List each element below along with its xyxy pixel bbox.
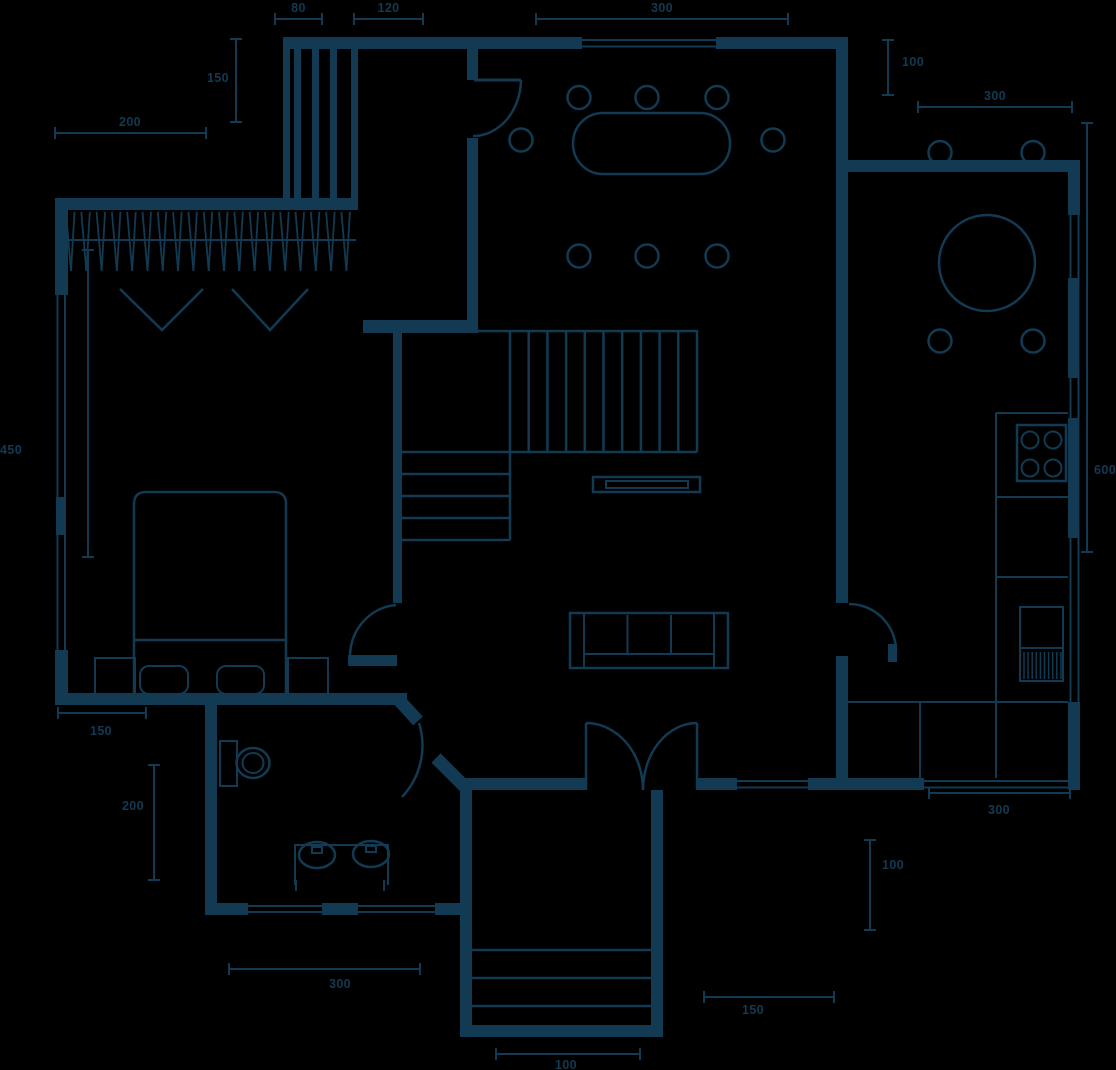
dim-150-bed: 150: [58, 707, 146, 738]
dim-150-top-left: 150: [207, 39, 242, 122]
burner-icon: [1045, 432, 1062, 449]
dim-label: 100: [555, 1058, 577, 1070]
generated-line: [209, 212, 213, 271]
generated-line: [326, 212, 331, 271]
generated-line: [173, 212, 178, 271]
generated-line: [301, 212, 305, 271]
dim-200-bath: 200: [122, 765, 160, 880]
bath-door-arc: [402, 723, 422, 797]
dim-100-steps: 100: [496, 1048, 640, 1070]
bath-door-panel: [436, 758, 466, 788]
generated-line: [234, 212, 239, 271]
generated-line: [255, 212, 259, 271]
hall-door-arc: [473, 80, 521, 136]
generated-line: [102, 212, 106, 271]
dim-label: 80: [291, 1, 306, 15]
floor-plan-canvas: 80 120 300 150 200 100 300 450 600 150 2…: [0, 0, 1116, 1070]
generated-line: [250, 212, 255, 271]
dim-100-kitchen: 100: [864, 840, 904, 930]
wall-porch-right: [651, 790, 663, 1037]
sink-hatch: [1024, 652, 1061, 679]
wall-hall-right-bottom: [467, 138, 478, 333]
generated-line: [127, 212, 132, 271]
generated-line: [280, 212, 285, 271]
generated-line: [219, 212, 224, 271]
faucet-icon: [366, 846, 376, 852]
wall-porch-bottom: [460, 1025, 663, 1037]
generated-line: [81, 212, 86, 271]
bed-icon: [134, 492, 286, 698]
dim-label: 120: [377, 1, 399, 15]
nightstand-icon: [288, 658, 328, 698]
generated-line: [311, 212, 316, 271]
wall-kitchen-bottom: [836, 778, 924, 790]
generated-line: [265, 212, 270, 271]
generated-line: [316, 212, 320, 271]
dim-300-top: 300: [536, 1, 788, 25]
dim-label: 100: [882, 858, 904, 872]
floor-plan-drawing: 80 120 300 150 200 100 300 450 600 150 2…: [0, 0, 1116, 1070]
generated-line: [270, 212, 274, 271]
wall-hall-bottom: [363, 320, 478, 333]
entry-door-arc-right: [643, 723, 697, 790]
generated-line: [204, 212, 209, 271]
burner-icon: [1045, 460, 1062, 477]
sofa-icon: [570, 613, 728, 668]
wall-hall-right-top: [467, 37, 478, 80]
dining-table-icon: [573, 113, 730, 174]
dim-label: 300: [651, 1, 673, 15]
tv-console-icon: [593, 477, 700, 492]
generated-line: [188, 212, 193, 271]
walls: [55, 37, 1080, 1037]
bedroom-door-panel: [348, 655, 397, 666]
chamfer-wall: [398, 699, 418, 721]
dim-80: 80: [275, 1, 322, 25]
generated-line: [346, 212, 350, 271]
wall-kitchen-east-bottom: [1068, 702, 1080, 790]
chair-icon: [636, 86, 659, 109]
tv-icon: [606, 481, 688, 488]
dim-label: 200: [122, 799, 144, 813]
wall-kitchen-east-top: [1068, 160, 1080, 215]
closet-hangers: [66, 212, 350, 271]
chair-icon: [568, 245, 591, 268]
burner-icon: [1022, 460, 1039, 477]
dim-150-porch: 150: [704, 991, 834, 1017]
dim-label: 300: [988, 803, 1010, 817]
faucet-icon: [312, 847, 322, 853]
stairs-upper-treads: [510, 330, 697, 452]
kitchen-counter: [848, 413, 1068, 778]
round-table-icon: [939, 215, 1035, 311]
wardrobe-right-wall: [351, 37, 358, 204]
generated-line: [132, 212, 136, 271]
dim-label: 150: [742, 1003, 764, 1017]
porch-steps: [472, 950, 651, 1006]
dim-300-kitchen-top: 300: [918, 89, 1072, 113]
wall-living-bottom-c: [808, 778, 848, 790]
wardrobe-divider: [294, 49, 301, 202]
pillow-icon: [217, 666, 264, 694]
generated-line: [71, 212, 75, 271]
staircase: [397, 330, 697, 540]
dim-label: 150: [90, 724, 112, 738]
wardrobe-divider: [312, 49, 319, 202]
dim-label: 100: [902, 55, 924, 69]
wall-east-upper: [836, 37, 848, 603]
chair-icon: [762, 129, 785, 152]
wall-top-right: [716, 37, 848, 49]
wall-bath-left: [205, 705, 217, 915]
generated-line: [148, 212, 152, 271]
wardrobe-divider: [330, 49, 337, 202]
toilet-icon: [220, 741, 270, 786]
dim-600-right: 600: [1081, 123, 1116, 552]
burner-icon: [1022, 432, 1039, 449]
generated-line: [143, 212, 148, 271]
chair-icon: [1022, 330, 1045, 353]
garment-icon: [232, 289, 308, 330]
generated-line: [112, 212, 117, 271]
generated-line: [224, 212, 228, 271]
dim-300-kitchen-bottom: 300: [929, 787, 1070, 817]
generated-line: [296, 212, 301, 271]
wall-bath-bottom-b: [322, 903, 358, 915]
nightstand-icon: [95, 658, 135, 698]
generated-line: [163, 212, 167, 271]
chamfer-walls: [398, 699, 466, 788]
chair-icon: [929, 330, 952, 353]
generated-line: [97, 212, 102, 271]
kitchen-door-arc: [849, 604, 896, 651]
wall-living-bottom-a: [462, 778, 586, 790]
dim-120: 120: [354, 1, 423, 25]
generated-line: [239, 212, 243, 271]
dim-label: 450: [0, 443, 22, 457]
wall-bath-bottom-a: [205, 903, 248, 915]
generated-line: [285, 212, 289, 271]
vanity-icon: [295, 841, 389, 885]
dim-label: 300: [984, 89, 1006, 103]
dim-300-bath: 300: [229, 963, 420, 991]
dim-label: 300: [329, 977, 351, 991]
wall-top-left: [283, 37, 582, 49]
entry-door-arc-left: [586, 723, 643, 790]
generated-line: [178, 212, 182, 271]
wall-stairs-left: [393, 333, 402, 603]
dim-label: 150: [207, 71, 229, 85]
dim-100-top-right: 100: [882, 40, 924, 95]
wall-kitchen-top: [836, 160, 1080, 172]
generated-line: [341, 212, 346, 271]
generated-line: [158, 212, 163, 271]
chair-icon: [706, 245, 729, 268]
chair-icon: [706, 86, 729, 109]
bedroom-door-arc: [350, 605, 396, 655]
garment-icon: [120, 289, 203, 330]
wall-living-bottom-b: [697, 778, 737, 790]
dim-450-left: 450: [0, 250, 94, 557]
chair-icon: [510, 129, 533, 152]
wardrobe-left-wall: [283, 37, 290, 204]
chair-icon: [568, 86, 591, 109]
wall-east-lower: [836, 656, 848, 790]
dim-label: 200: [119, 115, 141, 129]
chair-icon: [636, 245, 659, 268]
dim-label: 600: [1094, 463, 1116, 477]
pillow-icon: [140, 666, 188, 694]
generated-line: [117, 212, 121, 271]
dim-200-top-left: 200: [55, 115, 206, 139]
wall-bath-porch-west: [460, 782, 472, 1037]
generated-line: [193, 212, 197, 271]
generated-line: [331, 212, 335, 271]
